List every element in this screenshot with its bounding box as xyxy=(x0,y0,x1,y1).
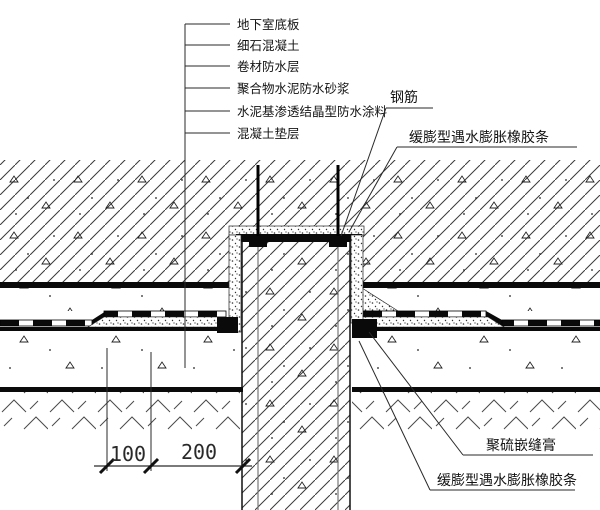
layer-label-membrane: 卷材防水层 xyxy=(237,59,300,74)
mortar-wedge-right xyxy=(362,317,504,327)
cushion-bottom-line-right xyxy=(352,387,600,392)
swelling-ring-right xyxy=(329,236,347,247)
swelling-strip-top-label: 缓膨型遇水膨胀橡胶条 xyxy=(409,129,549,145)
coating-line-left xyxy=(0,327,226,331)
layer-label-crystalline-coating: 水泥基渗透结晶型防水涂料 xyxy=(237,104,388,119)
basement-slab-section xyxy=(0,160,600,282)
dim-value-200: 200 xyxy=(181,440,217,464)
slab-bottom-line-left xyxy=(0,282,229,288)
sealant-block-left xyxy=(217,317,238,333)
mortar-wedge-left xyxy=(88,317,226,327)
fine-concrete-band-right xyxy=(360,288,600,311)
floor-layers-left xyxy=(0,282,243,430)
cushion-band-left xyxy=(0,331,242,387)
layer-label-polymer-mortar: 聚合物水泥防水砂浆 xyxy=(237,81,350,96)
sealant-block-right xyxy=(352,319,377,338)
swelling-ring-left xyxy=(249,236,267,247)
layer-label-fine-concrete: 细石混凝土 xyxy=(237,38,300,53)
floor-layers-right xyxy=(352,282,600,430)
construction-detail-drawing: 地下室底板 细石混凝土 卷材防水层 聚合物水泥防水砂浆 水泥基渗透结晶型防水涂料… xyxy=(0,0,600,510)
slab-bottom-line-right xyxy=(360,282,600,288)
soil-hatch-right xyxy=(352,392,600,430)
membrane-outer-left xyxy=(0,320,92,326)
dim-value-100: 100 xyxy=(110,442,146,466)
detail-canvas: 地下室底板 细石混凝土 卷材防水层 聚合物水泥防水砂浆 水泥基渗透结晶型防水涂料… xyxy=(0,0,600,510)
layer-label-cushion: 混凝土垫层 xyxy=(237,126,300,141)
layer-label-basement-slab: 地下室底板 xyxy=(237,17,300,32)
coating-line-right xyxy=(362,327,600,331)
membrane-outer-right xyxy=(502,320,600,326)
fine-concrete-band-left xyxy=(0,288,229,311)
rebar-label: 钢筋 xyxy=(390,89,418,105)
membrane-raised-left xyxy=(104,311,226,317)
sealant-label: 聚硫嵌缝膏 xyxy=(486,437,556,453)
membrane-raised-right xyxy=(362,311,486,317)
swelling-strip-bottom-label: 缓膨型遇水膨胀橡胶条 xyxy=(437,472,577,488)
cushion-bottom-line-left xyxy=(0,387,243,392)
soil-hatch-left xyxy=(0,392,243,430)
cap-coating-side-right xyxy=(351,235,363,323)
